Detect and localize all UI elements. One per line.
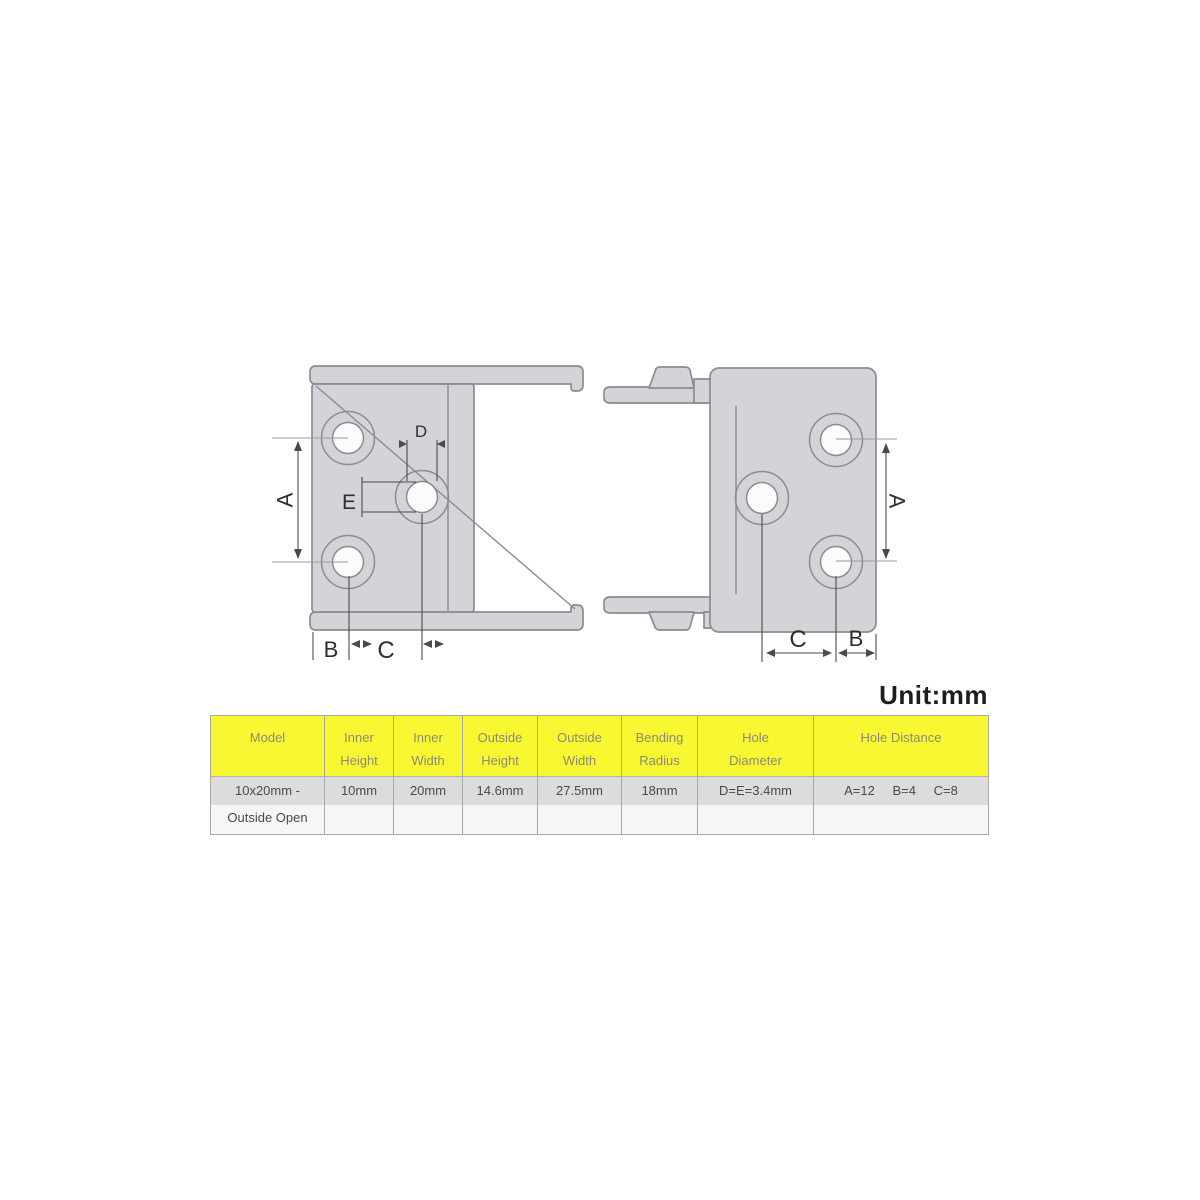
dim-label-e: E (342, 491, 356, 514)
cell-model: 10x20mm - Outside Open (211, 777, 325, 834)
cell-bending-radius: 18mm (622, 777, 698, 834)
hole-bore (407, 482, 438, 513)
dim-label-a: A (885, 494, 910, 509)
arrow-up-icon (294, 441, 302, 451)
arrow-left-icon (766, 649, 775, 657)
arrow-right-icon (363, 640, 372, 648)
bottom-link-tab (604, 597, 714, 613)
arrow-left-icon (423, 640, 432, 648)
arrow-up-icon (882, 443, 890, 453)
arrow-right-icon (435, 640, 444, 648)
dim-label-b: B (324, 637, 339, 662)
header-hole-diameter: Hole Diameter (698, 716, 814, 777)
product-spec-image: A D E B C (0, 0, 1200, 1200)
dim-label-c: C (377, 637, 394, 664)
arrow-down-icon (294, 549, 302, 559)
arrow-left-icon (838, 649, 847, 657)
dim-label-d: D (415, 422, 427, 441)
header-model: Model (211, 716, 325, 777)
header-hole-distance: Hole Distance (814, 716, 988, 777)
hole-bore (821, 547, 852, 578)
cell-inner-width: 20mm (394, 777, 463, 834)
dim-label-b: B (849, 626, 864, 651)
cell-outside-width: 27.5mm (538, 777, 622, 834)
cell-hole-distance: A=12 B=4 C=8 (814, 777, 988, 834)
arrow-right-icon (866, 649, 875, 657)
unit-label: Unit:mm (788, 680, 988, 711)
technical-drawing: A D E B C (230, 350, 1010, 680)
header-outside-width: Outside Width (538, 716, 622, 777)
hole-distance-a: A=12 (844, 777, 875, 805)
header-bending-radius: Bending Radius (622, 716, 698, 777)
header-inner-height: Inner Height (325, 716, 394, 777)
arrow-down-icon (882, 549, 890, 559)
right-view (604, 367, 876, 632)
bottom-link-lug (649, 612, 694, 630)
dim-label-c: C (789, 626, 806, 653)
hole-bore (747, 483, 778, 514)
spec-table: Model Inner Height Inner Width Outside H… (210, 715, 989, 835)
arrow-left-icon (351, 640, 360, 648)
top-link-lug (649, 367, 694, 388)
cell-inner-height: 10mm (325, 777, 394, 834)
dim-label-a: A (273, 492, 298, 507)
hole-distance-b: B=4 (893, 777, 917, 805)
cell-hole-diameter: D=E=3.4mm (698, 777, 814, 834)
arrow-right-icon (823, 649, 832, 657)
hole-distance-c: C=8 (934, 777, 958, 805)
hole-bore (821, 425, 852, 456)
header-outside-height: Outside Height (463, 716, 538, 777)
header-inner-width: Inner Width (394, 716, 463, 777)
cell-outside-height: 14.6mm (463, 777, 538, 834)
mounting-plate (312, 384, 474, 612)
